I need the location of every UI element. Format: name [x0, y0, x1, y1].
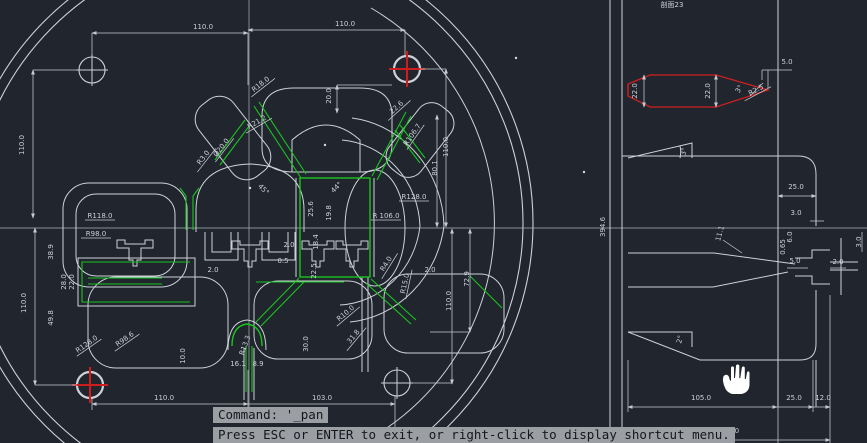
dimension-label: 0.65 — [779, 239, 787, 255]
dimension-label: 5.0 — [781, 58, 792, 66]
dimension-label: R98.0 — [81, 230, 111, 238]
dimension-label: 剖面23 — [661, 0, 684, 9]
command-input[interactable]: Command: '_pan — [213, 407, 328, 423]
dimension-label: R128.0 — [399, 193, 429, 201]
dimension-label: R118.0 — [85, 212, 115, 220]
svg-text:0.5: 0.5 — [277, 257, 288, 265]
dimension-label: 5.0 — [789, 257, 800, 265]
dimension-label: 11.1 — [714, 225, 726, 242]
svg-text:3°: 3° — [679, 147, 688, 156]
dimension-label: 3° — [679, 147, 688, 156]
svg-text:25.0: 25.0 — [786, 394, 802, 402]
dimension-label: 22.0 — [704, 83, 712, 99]
svg-text:5.0: 5.0 — [789, 257, 800, 265]
svg-text:28.0: 28.0 — [60, 274, 68, 290]
section-dimensions — [628, 196, 862, 443]
svg-text:110.0: 110.0 — [18, 135, 26, 155]
dimension-label: 2.0 — [283, 241, 294, 249]
dimension-label: 110.0 — [193, 23, 213, 31]
svg-text:80.1: 80.1 — [431, 160, 439, 176]
dimension-label: R13.3 — [238, 334, 253, 356]
bolt-hole-bottom-left-highlighted — [72, 367, 108, 403]
svg-text:45°: 45° — [256, 182, 270, 196]
dimension-label: 3.0 — [855, 236, 863, 247]
dimension-label: 80.1 — [431, 160, 439, 176]
svg-text:5.0: 5.0 — [781, 58, 792, 66]
dimension-label: 105.0 — [691, 394, 711, 402]
svg-text:R3.0: R3.0 — [195, 149, 211, 167]
dimension-label: 49.8 — [47, 310, 55, 326]
dimension-label: 110.0 — [442, 137, 450, 157]
dimension-label: 30.0 — [302, 336, 310, 352]
svg-text:0.65: 0.65 — [779, 239, 787, 255]
svg-text:R13.3: R13.3 — [238, 334, 253, 356]
dimension-label: R18.0 — [246, 72, 275, 97]
dimension-label: 3° — [734, 84, 745, 95]
dimension-label: 110.0 — [18, 135, 26, 155]
svg-text:110.0: 110.0 — [442, 137, 450, 157]
dimension-label: 38.9 — [47, 244, 55, 260]
die-inner-circle — [0, 0, 523, 443]
svg-text:12.0: 12.0 — [815, 394, 831, 402]
svg-text:22.5: 22.5 — [310, 263, 318, 279]
dimension-label: 72.9 — [463, 271, 471, 287]
dimension-label: 28.0 — [60, 274, 68, 290]
svg-text:R4.0: R4.0 — [379, 255, 394, 273]
svg-text:2.0: 2.0 — [832, 258, 843, 266]
dimension-label: 110.0 — [20, 293, 28, 313]
svg-text:2.0: 2.0 — [424, 266, 435, 274]
dimension-label: 25.6 — [307, 201, 315, 217]
svg-text:R118.0: R118.0 — [88, 212, 113, 220]
svg-text:3.0: 3.0 — [855, 236, 863, 247]
dimension-label: R 106.0 — [371, 212, 401, 220]
dimension-label: 45° — [256, 182, 270, 196]
dimension-label: 44° — [329, 180, 343, 194]
svg-text:2.0: 2.0 — [207, 266, 218, 274]
dimension-label: 8.9 — [252, 360, 263, 368]
bolt-hole-bottom-right — [381, 367, 413, 399]
dimension-label: 18.4 — [312, 234, 320, 250]
svg-text:25.0: 25.0 — [788, 183, 804, 191]
svg-text:110.0: 110.0 — [154, 394, 174, 402]
svg-text:22.0: 22.0 — [631, 83, 639, 99]
svg-text:110.0: 110.0 — [193, 23, 213, 31]
dimension-label: 10.0 — [179, 348, 187, 364]
dimension-label: 110.0 — [445, 291, 453, 311]
svg-text:Ø20.0: Ø20.0 — [212, 137, 231, 159]
svg-text:R128.0: R128.0 — [74, 334, 99, 355]
bolt-hole-top-left — [76, 54, 108, 86]
dimension-label: 2° — [675, 335, 685, 345]
svg-text:22.0: 22.0 — [68, 274, 76, 290]
svg-text:3.0: 3.0 — [790, 209, 801, 217]
status-message-bar: Press ESC or ENTER to exit, or right-cli… — [213, 427, 735, 443]
dimension-label: 394.6 — [599, 216, 607, 237]
svg-text:2°: 2° — [675, 335, 685, 345]
dimension-label: 20.0 — [325, 88, 333, 104]
dimension-label: 22.0 — [631, 83, 639, 99]
dimension-label: 2.0 — [424, 266, 435, 274]
svg-text:剖面23: 剖面23 — [661, 0, 684, 9]
svg-text:R128.0: R128.0 — [402, 193, 427, 201]
dimension-label: R98.6 — [110, 327, 139, 351]
dimension-label: 3.0 — [790, 209, 801, 217]
svg-text:49.8: 49.8 — [47, 310, 55, 326]
dimension-label: R106.7 — [400, 120, 424, 149]
pan-hand-cursor-icon — [722, 364, 750, 395]
dimension-label: 12.0 — [815, 394, 831, 402]
svg-text:R 106.0: R 106.0 — [372, 212, 399, 220]
dimension-label: 22.0 — [68, 274, 76, 290]
svg-text:44°: 44° — [329, 180, 343, 194]
svg-text:R10.0: R10.0 — [335, 304, 356, 323]
svg-text:110.0: 110.0 — [20, 293, 28, 313]
svg-text:110.0: 110.0 — [335, 20, 355, 28]
svg-text:394.6: 394.6 — [599, 216, 607, 237]
dimension-label: 25.0 — [786, 394, 802, 402]
svg-text:105.0: 105.0 — [691, 394, 711, 402]
svg-text:2.0: 2.0 — [283, 241, 294, 249]
svg-text:6.0: 6.0 — [786, 231, 794, 242]
dimension-label: R4.0 — [375, 249, 398, 279]
svg-text:16.1: 16.1 — [230, 360, 246, 368]
svg-text:22.0: 22.0 — [704, 83, 712, 99]
svg-text:38.9: 38.9 — [47, 244, 55, 260]
dimension-label: 25.0 — [788, 183, 804, 191]
drawing-canvas[interactable]: 110.0110.0110.0110.0110.0103.0110.080.11… — [0, 0, 867, 443]
dimension-label: 16.1 — [230, 360, 246, 368]
svg-text:3°: 3° — [734, 84, 745, 95]
svg-text:19.8: 19.8 — [325, 205, 333, 221]
dimension-label: 2.0 — [207, 266, 218, 274]
svg-text:72.9: 72.9 — [463, 271, 471, 287]
dimension-label: 19.8 — [325, 205, 333, 221]
svg-text:R21.2: R21.2 — [246, 114, 268, 131]
dimension-label: 22.5 — [310, 263, 318, 279]
svg-text:11.1: 11.1 — [714, 225, 726, 242]
svg-text:R18.0: R18.0 — [250, 75, 271, 94]
svg-text:8.9: 8.9 — [252, 360, 263, 368]
svg-text:25.6: 25.6 — [307, 201, 315, 217]
svg-text:R98.0: R98.0 — [86, 230, 106, 238]
dimension-label: 110.0 — [154, 394, 174, 402]
svg-text:103.0: 103.0 — [312, 394, 332, 402]
svg-text:30.0: 30.0 — [302, 336, 310, 352]
dimension-label: 103.0 — [312, 394, 332, 402]
dimension-label: 0.5 — [277, 257, 288, 265]
relief-arc — [371, 8, 494, 438]
svg-text:20.0: 20.0 — [325, 88, 333, 104]
dimension-label: 6.0 — [786, 231, 794, 242]
cad-viewport[interactable]: 110.0110.0110.0110.0110.0103.0110.080.11… — [0, 0, 867, 443]
bolt-hole-top-right-highlighted — [389, 51, 425, 87]
dimension-label: 110.0 — [335, 20, 355, 28]
svg-text:10.0: 10.0 — [179, 348, 187, 364]
svg-text:110.0: 110.0 — [445, 291, 453, 311]
svg-text:18.4: 18.4 — [312, 234, 320, 250]
dimension-label: 2.0 — [832, 258, 843, 266]
dimension-label: R128.0 — [72, 332, 101, 356]
